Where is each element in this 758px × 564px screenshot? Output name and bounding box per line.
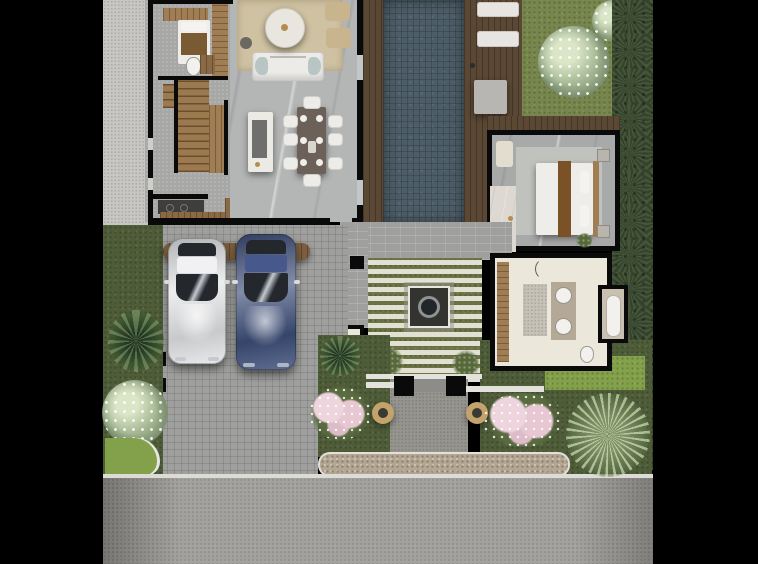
pink-shrubs-east <box>482 393 564 447</box>
bathtub <box>606 295 621 337</box>
bath-mat <box>523 284 547 336</box>
pool-deck-west <box>363 0 383 226</box>
guest-toilet <box>186 57 201 76</box>
cooktop-burner <box>166 204 174 212</box>
door-opening <box>148 178 153 190</box>
bedroom-armchair <box>496 141 513 167</box>
gate-flank-wall <box>466 386 544 392</box>
stair-wall <box>174 79 178 173</box>
planter-core <box>378 408 388 418</box>
door-opening <box>148 138 153 150</box>
bed-pillow <box>580 171 589 193</box>
rear-window-glass <box>178 243 216 256</box>
stepping-stone <box>474 80 507 114</box>
dining-chair <box>303 174 321 187</box>
island-bowl <box>255 162 260 167</box>
armchair <box>326 28 351 48</box>
garden-palm <box>108 310 164 372</box>
dining-chair <box>328 115 343 128</box>
white-suv <box>168 238 226 364</box>
side-mirror <box>164 280 170 284</box>
vanity-sink <box>555 287 572 304</box>
centerpiece <box>308 141 316 153</box>
gate-flank-wall <box>366 382 394 388</box>
rear-window-glass <box>246 240 286 254</box>
bathroom-toilet <box>580 346 594 363</box>
road <box>103 478 653 564</box>
windshield-glass <box>244 273 288 302</box>
grass-mound <box>105 438 157 476</box>
place-setting <box>316 115 323 122</box>
gate-post <box>394 376 414 396</box>
entry-planter <box>372 402 394 424</box>
planter-core <box>472 408 482 418</box>
windshield-glass <box>176 274 218 301</box>
side-mirror <box>224 280 230 284</box>
sun-lounger <box>477 31 519 47</box>
dining-chair <box>283 115 298 128</box>
headlight <box>175 357 186 361</box>
sofa <box>252 52 324 81</box>
kitchen-partition <box>152 194 208 199</box>
dining-table <box>297 107 326 174</box>
car-roof <box>245 255 287 272</box>
coffee-table <box>265 8 305 48</box>
headlight <box>243 363 255 367</box>
south-wall <box>148 218 330 225</box>
lap-pool <box>383 0 464 224</box>
side-mirror <box>294 280 300 284</box>
side-mirror <box>232 280 238 284</box>
sofa-back-seam <box>270 56 306 58</box>
side-table <box>240 37 252 49</box>
door-swing-arc <box>535 258 557 280</box>
foyer-column <box>350 256 364 269</box>
nightstand <box>597 225 610 238</box>
north-wall <box>148 0 233 4</box>
hood-highlight <box>174 304 220 346</box>
cooktop-burner <box>180 204 188 212</box>
bed-runner <box>558 161 571 237</box>
king-bed <box>536 163 593 235</box>
staircase <box>178 79 209 172</box>
water-feature-basin <box>418 296 440 318</box>
guest-room-partition <box>158 76 228 80</box>
fan-palm <box>566 393 650 477</box>
vanity-sink <box>555 318 572 335</box>
sofa-arm-cushion <box>308 57 321 75</box>
stair-landing <box>209 105 224 173</box>
pink-shrubs-west <box>308 386 372 440</box>
dining-chair <box>303 96 321 109</box>
guest-bed-blanket <box>181 33 207 55</box>
headlight <box>277 363 289 367</box>
place-setting <box>316 137 323 144</box>
gate-post <box>446 376 466 396</box>
place-setting <box>316 159 323 166</box>
dining-chair <box>283 133 298 146</box>
hood-highlight <box>242 306 290 350</box>
bedroom-plant <box>576 233 593 248</box>
floorplan-render <box>0 0 758 564</box>
island-counter-top <box>252 120 267 158</box>
white-flowering-tree <box>102 380 168 446</box>
car-roof <box>177 257 217 273</box>
dining-chair <box>328 133 343 146</box>
bed-pillow <box>580 205 589 227</box>
nightstand <box>597 149 610 162</box>
sofa-arm-cushion <box>255 57 268 75</box>
stair-wall <box>224 100 228 175</box>
dining-chair <box>328 157 343 170</box>
water-feature <box>408 286 450 328</box>
bathtub-niche <box>598 285 628 343</box>
place-setting <box>300 115 307 122</box>
guest-bed-pillow <box>181 22 207 31</box>
bedroom-roof-band <box>487 116 620 130</box>
dining-chair <box>283 157 298 170</box>
dining-set <box>281 94 343 188</box>
double-vanity <box>551 282 576 340</box>
sun-lounger <box>477 2 519 17</box>
entry-palm <box>320 336 360 376</box>
place-setting <box>300 159 307 166</box>
headlight <box>208 357 219 361</box>
coffee-table-decor <box>281 24 288 31</box>
blue-suv <box>236 234 296 370</box>
bathroom-wood-wall <box>497 262 509 362</box>
kitchen-island <box>248 112 273 172</box>
deck-light <box>470 63 475 68</box>
guest-vanity <box>200 55 215 74</box>
master-bathroom <box>490 253 612 371</box>
armchair <box>325 2 350 21</box>
door-handle <box>508 216 513 221</box>
place-setting <box>300 137 307 144</box>
entry-steps <box>414 378 446 392</box>
